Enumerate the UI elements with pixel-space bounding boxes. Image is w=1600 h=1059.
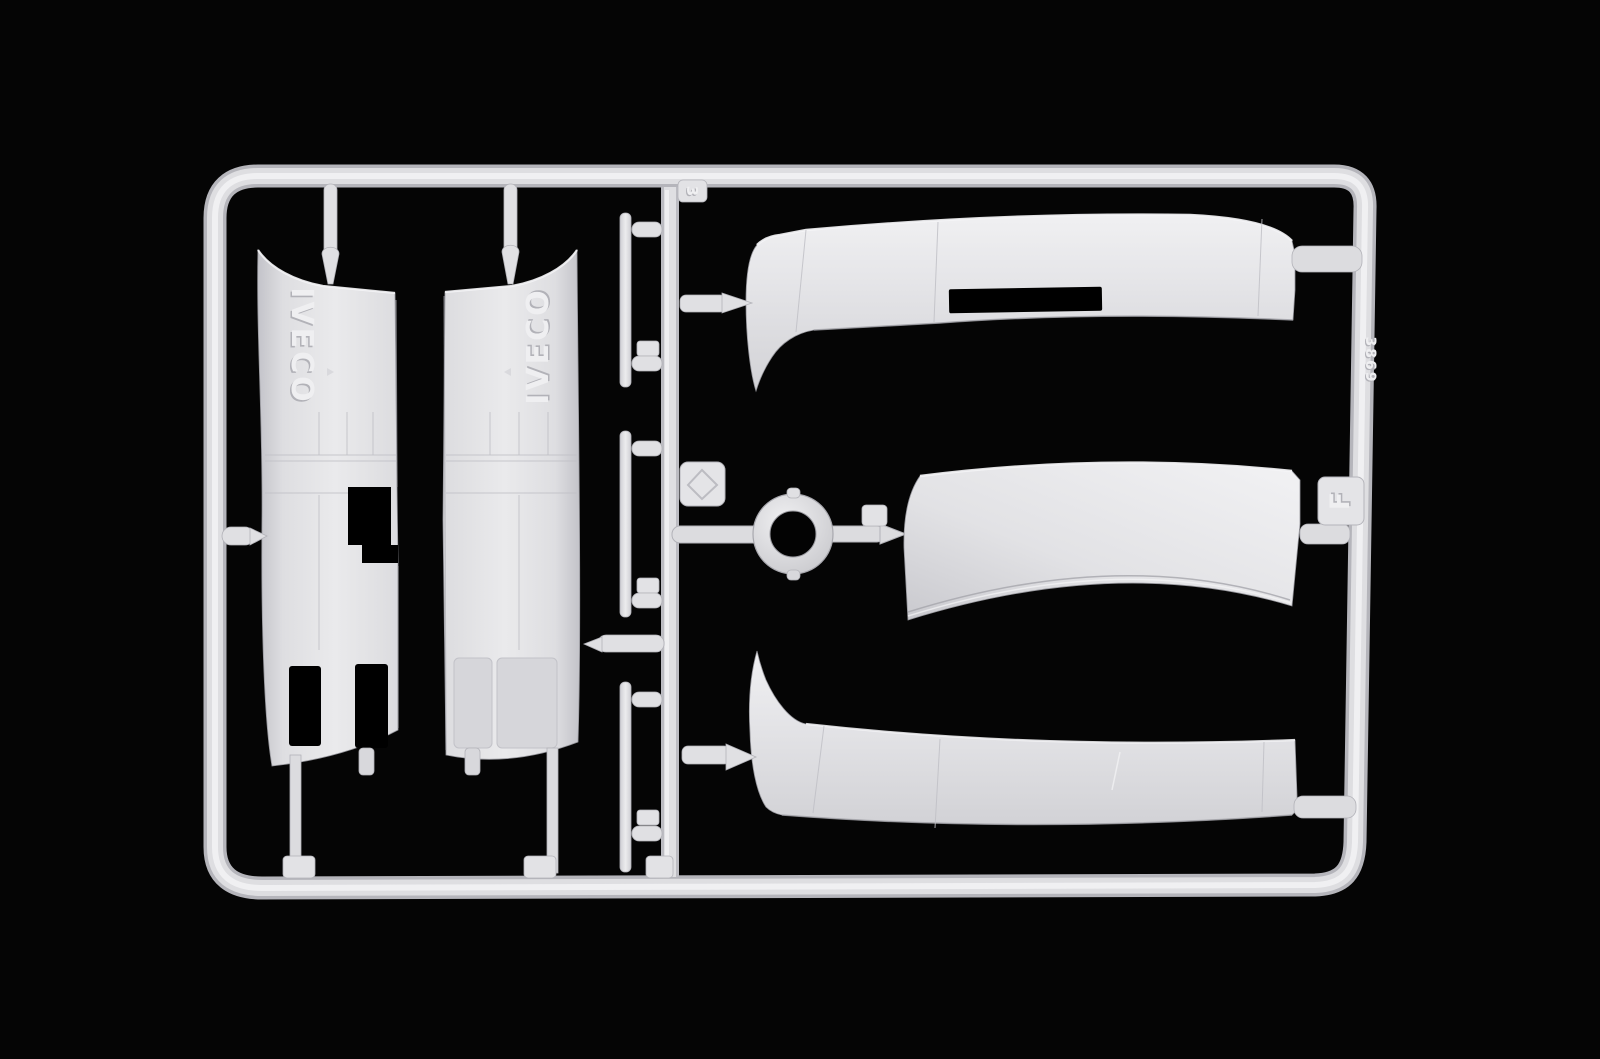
roof-panel-right-gate xyxy=(1300,524,1350,544)
sprue-photo-canvas: 3 3 IVECO IVECO xyxy=(0,0,1600,1059)
left-panel-top-stub xyxy=(324,184,337,256)
top-visor-left-gate xyxy=(680,295,726,312)
runner-logo-tab xyxy=(680,462,725,506)
ring-top-nub xyxy=(787,488,800,498)
right-panel-peg xyxy=(465,748,480,775)
strip2-bottom-gate xyxy=(632,593,662,608)
gate-number: 3 xyxy=(683,186,701,196)
trim-strip-1 xyxy=(620,213,631,387)
top-visor-window-cutout xyxy=(949,287,1102,314)
strip3-bottom-gate xyxy=(632,826,662,841)
left-panel-slot-cutout-2 xyxy=(355,664,388,748)
mold-code-text: 3869 xyxy=(1362,337,1378,384)
left-cab-panel: IVECO IVECO xyxy=(258,250,398,775)
right-panel-side-gate-capsule xyxy=(598,635,664,652)
right-panel-recess-1 xyxy=(454,658,492,748)
strip3-bottom-tab xyxy=(637,810,659,825)
iveco-logo-embossed-left: IVECO IVECO xyxy=(282,287,319,406)
bottom-foot-tab-3 xyxy=(646,856,673,878)
mid-runner-left-segment xyxy=(672,526,762,543)
gate-tab-f: F F xyxy=(1318,477,1364,525)
left-panel-slot-cutout-1 xyxy=(289,666,321,746)
bottom-foot-tab-2 xyxy=(524,856,556,878)
sprue-letter: F xyxy=(1325,492,1356,510)
mid-runner-small-tab xyxy=(862,505,887,526)
bottom-visor-left-gate xyxy=(682,746,730,764)
left-iveco-text: IVECO xyxy=(284,287,319,404)
left-rail-gate-capsule xyxy=(222,527,254,545)
gate-tab-3: 3 3 xyxy=(678,180,707,202)
ring-hole xyxy=(770,511,816,557)
iveco-logo-embossed-right: IVECO IVECO xyxy=(521,286,558,405)
strip3-top-gate xyxy=(632,692,662,707)
right-cab-panel: IVECO IVECO xyxy=(443,250,580,775)
strip2-bottom-tab xyxy=(637,578,659,593)
ring-bottom-nub xyxy=(787,570,800,580)
mold-code: 3869 3869 xyxy=(1361,337,1378,385)
left-panel-peg xyxy=(359,748,374,775)
strip1-top-gate xyxy=(632,222,662,237)
right-panel-top-stub xyxy=(504,184,517,254)
trim-strip-2 xyxy=(620,431,631,617)
right-panel-bottom-stalk xyxy=(547,748,558,873)
trim-strip-3 xyxy=(620,682,631,872)
mid-runner-right-segment xyxy=(826,526,884,542)
left-panel-bottom-stalk xyxy=(290,755,301,873)
bottom-visor-right-gate xyxy=(1294,796,1356,818)
central-runner xyxy=(667,187,670,877)
top-visor-right-gate xyxy=(1292,246,1362,272)
right-iveco-text: IVECO xyxy=(521,287,556,404)
right-panel-recess-2 xyxy=(497,658,557,748)
strip1-bottom-tab xyxy=(637,341,659,356)
strip1-bottom-gate xyxy=(632,356,662,371)
photo-model-kit-sprue: 3 3 IVECO IVECO xyxy=(0,0,1600,1059)
bottom-foot-tab-1 xyxy=(283,856,315,878)
strip2-top-gate xyxy=(632,441,662,456)
